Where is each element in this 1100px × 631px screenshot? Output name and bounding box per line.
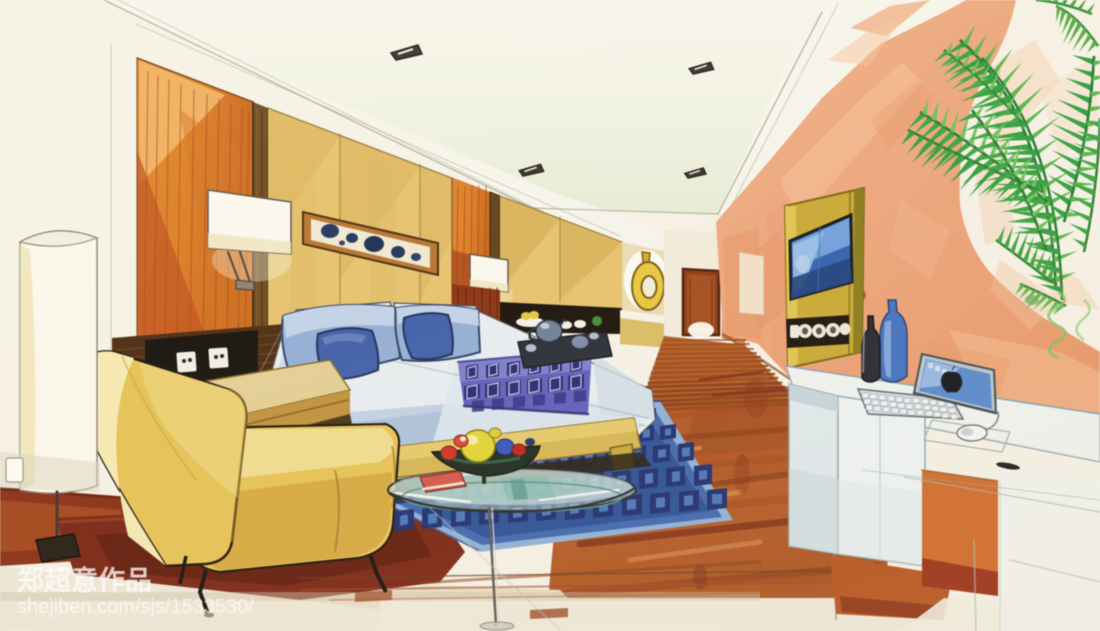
svg-text:shejiben.com/sjs/1533530/: shejiben.com/sjs/1533530/ (17, 596, 254, 618)
svg-text:郑超意作品: 郑超意作品 (17, 565, 152, 596)
